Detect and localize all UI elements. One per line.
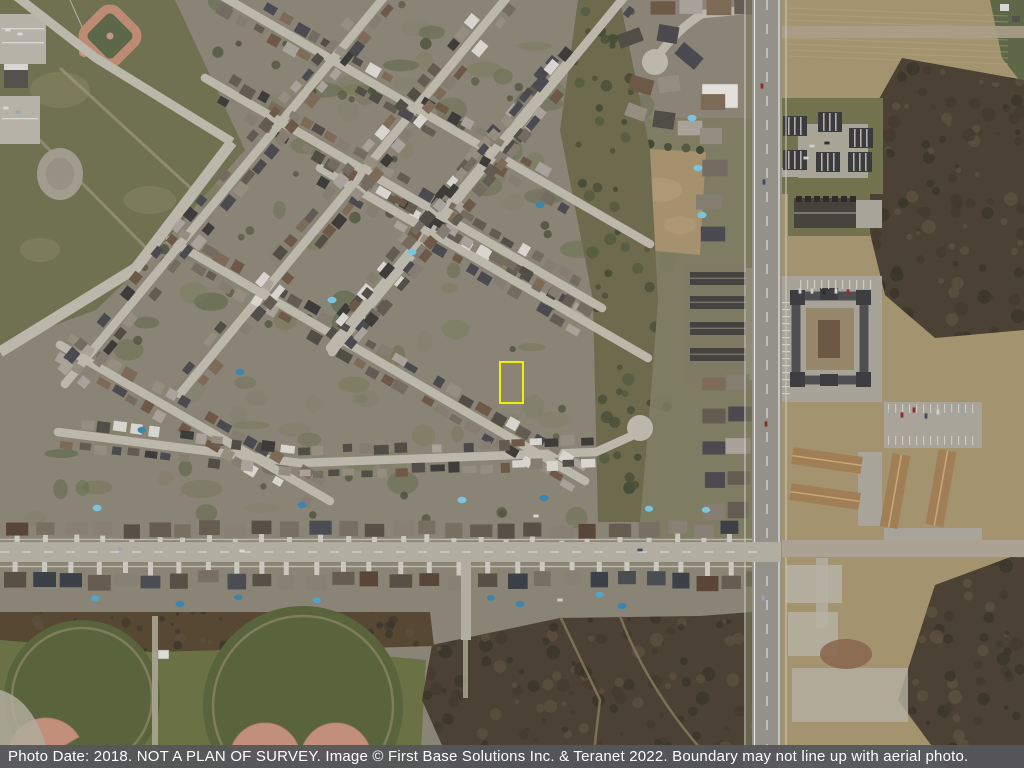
pitcher-mound (107, 33, 114, 40)
long-building (788, 192, 882, 236)
spur-road-northeast (782, 26, 1024, 38)
aerial-photo-viewer: Photo Date: 2018. NOT A PLAN OF SURVEY. … (0, 0, 1024, 768)
disclaimer-text: Photo Date: 2018. NOT A PLAN OF SURVEY. … (0, 745, 968, 768)
parking-lot-south (0, 96, 40, 144)
road-east-extension (782, 540, 1024, 557)
park-access-road (461, 562, 471, 640)
aerial-photo (0, 0, 1024, 768)
disclaimer-bar: Photo Date: 2018. NOT A PLAN OF SURVEY. … (0, 745, 1024, 768)
courtyard-building-complex (778, 276, 882, 402)
main-road-north-south (745, 0, 786, 768)
parking-lot-north (0, 14, 46, 64)
small-white-building (158, 650, 169, 659)
apartment-complex-northeast (779, 98, 883, 194)
